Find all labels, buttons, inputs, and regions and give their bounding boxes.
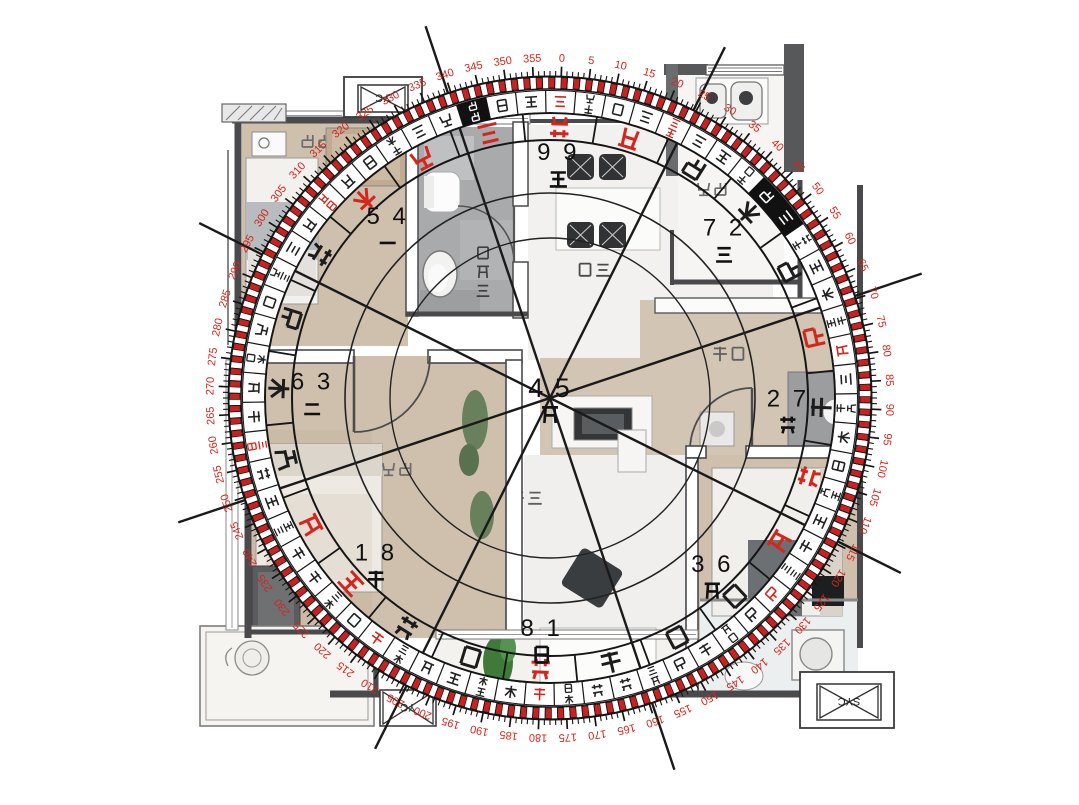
- svg-text:1 8: 1 8: [355, 539, 397, 566]
- svg-text:180: 180: [529, 731, 548, 744]
- svg-text:265: 265: [205, 406, 218, 425]
- svg-text:SYC: SYC: [838, 695, 861, 707]
- svg-text:275: 275: [206, 347, 220, 367]
- svg-text:175: 175: [558, 731, 577, 744]
- svg-text:80: 80: [879, 344, 893, 358]
- svg-text:355: 355: [523, 53, 542, 66]
- svg-text:170: 170: [587, 727, 607, 741]
- svg-text:85: 85: [883, 374, 896, 387]
- svg-text:270: 270: [204, 377, 217, 396]
- svg-text:8 1: 8 1: [521, 615, 563, 642]
- svg-text:10: 10: [613, 59, 627, 73]
- svg-text:7 2: 7 2: [703, 215, 745, 242]
- svg-text:90: 90: [883, 404, 895, 417]
- svg-text:6 3: 6 3: [291, 369, 333, 396]
- svg-text:185: 185: [499, 728, 519, 742]
- svg-text:95: 95: [880, 433, 893, 447]
- svg-text:260: 260: [207, 435, 221, 455]
- svg-text:9 9: 9 9: [537, 139, 579, 166]
- svg-text:0: 0: [559, 53, 566, 65]
- svg-text:3 6: 3 6: [691, 551, 733, 578]
- svg-text:2 7: 2 7: [767, 385, 809, 412]
- svg-text:350: 350: [493, 55, 513, 69]
- svg-text:4 5: 4 5: [528, 373, 572, 403]
- svg-text:5 4: 5 4: [367, 203, 409, 230]
